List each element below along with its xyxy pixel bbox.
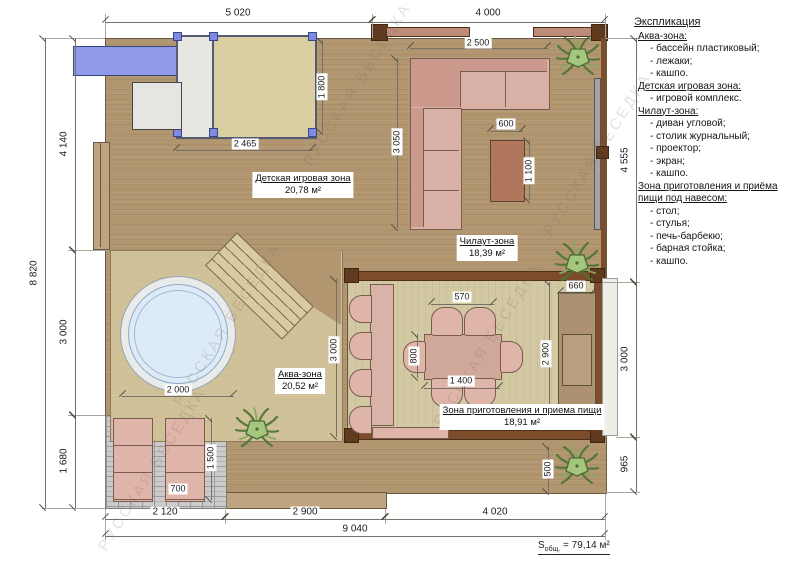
dining-chair <box>431 307 463 336</box>
mid-post <box>596 146 609 159</box>
dim-chairs: 570 <box>452 292 471 303</box>
dim-kids-h: 1 800 <box>317 74 328 101</box>
side-bench-line <box>100 143 101 247</box>
sofa-seat-divider <box>423 190 459 191</box>
dim-bottom-1: 2 120 <box>150 507 179 518</box>
sofa-corner-block <box>411 59 461 107</box>
zone-name: Аква-зона <box>278 369 322 381</box>
dim-line <box>176 150 313 151</box>
legend-item: - стол; <box>634 206 796 219</box>
dim-line <box>424 388 500 389</box>
legend-item: - печь-барбекю; <box>634 231 796 244</box>
legend-heading: Детская игровая зона: <box>634 81 796 94</box>
legend-item: - кашпо. <box>634 68 796 81</box>
planter-plant <box>234 406 280 452</box>
dim-ctable-h: 1 100 <box>524 158 535 185</box>
dim-line <box>105 536 605 537</box>
zone-label-dining: Зона приготовления и приема пищи 18,91 м… <box>440 404 605 430</box>
bar-counter <box>370 284 394 426</box>
pool-inner-ring <box>134 290 222 378</box>
legend-item: - лежаки; <box>634 56 796 69</box>
legend-heading: Чилаут-зона: <box>634 106 796 119</box>
dim-left-1: 4 140 <box>59 129 70 158</box>
dim-line <box>75 38 76 250</box>
slide <box>73 46 180 76</box>
sofa-backrest-top <box>460 59 547 72</box>
complex-corner <box>173 32 182 41</box>
planter-plant <box>554 240 600 286</box>
legend-item: - столик журнальный; <box>634 131 796 144</box>
legend-heading: Зона приготовления и приёма пищи под нав… <box>634 181 796 206</box>
dim-planter: 500 <box>543 459 554 478</box>
sun-lounger <box>113 418 153 502</box>
zone-label-aqua: Аква-зона 20,52 м² <box>275 368 325 394</box>
dim-line <box>431 304 494 305</box>
bar-stool <box>349 406 372 434</box>
dim-right-1: 4 555 <box>620 145 631 174</box>
legend-item: - кашпо. <box>634 256 796 269</box>
dim-bottom-total: 9 040 <box>340 524 369 535</box>
legend: Экспликация Аква-зона: - бассейн пластик… <box>634 16 796 268</box>
dim-pool: 2 000 <box>165 385 192 396</box>
palm-icon <box>555 34 601 80</box>
bar-stool <box>349 295 372 323</box>
play-complex-right <box>212 35 317 139</box>
total-area-sub: общ. <box>545 546 561 553</box>
dim-lounger-w: 700 <box>168 484 187 495</box>
bar-stool <box>349 332 372 360</box>
legend-item: - экран; <box>634 156 796 169</box>
dim-line <box>490 131 523 132</box>
planter-plant <box>554 443 600 489</box>
dim-line <box>105 22 372 23</box>
legend-item: - бассейн пластиковый; <box>634 43 796 56</box>
zone-name: Чилаут-зона <box>460 236 515 248</box>
sofa-seat-divider <box>505 71 506 107</box>
dim-left-2: 3 000 <box>59 317 70 346</box>
dim-dining-h: 2 900 <box>541 341 552 368</box>
side-bench <box>93 142 110 250</box>
dim-bottom-2: 2 900 <box>290 507 319 518</box>
dim-kids-w: 2 465 <box>232 139 259 150</box>
dim-dining-zone-h: 3 000 <box>329 337 340 364</box>
dim-line <box>560 293 594 294</box>
dim-bottom-3: 4 020 <box>480 507 509 518</box>
dining-post <box>344 268 359 283</box>
dim-bbq: 660 <box>566 281 585 292</box>
dim-lounger-l: 1 500 <box>206 445 217 472</box>
zone-label-chill: Чилаут-зона 18,39 м² <box>457 235 518 261</box>
dim-line <box>122 396 234 397</box>
palm-icon <box>554 443 600 489</box>
outside-counter <box>602 278 618 436</box>
dim-right-3: 965 <box>620 454 631 475</box>
dim-top-right: 4 000 <box>473 8 502 19</box>
dim-top-left: 5 020 <box>223 8 252 19</box>
legend-item: - стулья; <box>634 218 796 231</box>
dim-left-total: 8 820 <box>29 258 40 287</box>
palm-icon <box>234 406 280 452</box>
zone-area: 20,78 м² <box>255 185 350 197</box>
dining-table <box>424 334 502 380</box>
dim-right-2: 3 000 <box>620 344 631 373</box>
total-area: Sобщ. = 79,14 м² <box>538 540 610 555</box>
legend-item: - барная стойка; <box>634 243 796 256</box>
dim-line <box>372 22 605 23</box>
complex-corner <box>209 32 218 41</box>
zone-area: 18,91 м² <box>443 417 602 429</box>
zone-area: 20,52 м² <box>278 381 322 393</box>
dim-line <box>225 519 385 520</box>
dim-table-depth: 800 <box>409 346 420 365</box>
coffee-table <box>490 140 525 202</box>
dim-ctable-w: 600 <box>496 119 515 130</box>
sofa-seat-divider <box>423 150 459 151</box>
dim-line <box>105 519 225 520</box>
floor-plan-canvas: РУССКАЯ БЕСЕДКА РУССКАЯ БЕСЕДКА РУССКАЯ … <box>0 0 800 566</box>
canopy-rail <box>386 27 470 37</box>
legend-title: Экспликация <box>634 16 796 29</box>
zone-label-kids: Детская игровая зона 20,78 м² <box>252 172 353 198</box>
dining-chair <box>464 307 496 336</box>
zone-name: Зона приготовления и приема пищи <box>443 405 602 417</box>
legend-item: - кашпо. <box>634 168 796 181</box>
bbq-stove <box>562 334 592 386</box>
legend-heading: Аква-зона: <box>634 31 796 44</box>
dim-sofa-h: 3 050 <box>392 129 403 156</box>
dim-table-w: 1 400 <box>448 376 475 387</box>
dim-sofa-w: 2 500 <box>465 38 492 49</box>
dining-chair <box>500 341 523 373</box>
zone-area: 18,39 м² <box>460 248 515 260</box>
dim-line <box>75 415 76 508</box>
total-area-symbol: S <box>538 540 545 551</box>
right-wall <box>601 38 606 280</box>
dim-line <box>45 38 46 508</box>
complex-corner <box>209 128 218 137</box>
dim-line <box>385 519 605 520</box>
sofa-backrest-left <box>411 108 424 227</box>
legend-item: - диван угловой; <box>634 118 796 131</box>
palm-icon <box>554 240 600 286</box>
planter-plant <box>555 34 601 80</box>
bar-stool <box>349 369 372 397</box>
zone-name: Детская игровая зона <box>255 173 350 185</box>
legend-item: - игровой комплекс. <box>634 93 796 106</box>
bottom-bench <box>372 427 449 439</box>
total-area-value: = 79,14 м² <box>560 540 609 551</box>
legend-item: - проектор; <box>634 143 796 156</box>
dim-line <box>636 282 637 437</box>
play-mat <box>132 82 182 130</box>
dim-line <box>75 250 76 415</box>
dim-left-3: 1 680 <box>59 446 70 475</box>
dim-line <box>636 437 637 492</box>
